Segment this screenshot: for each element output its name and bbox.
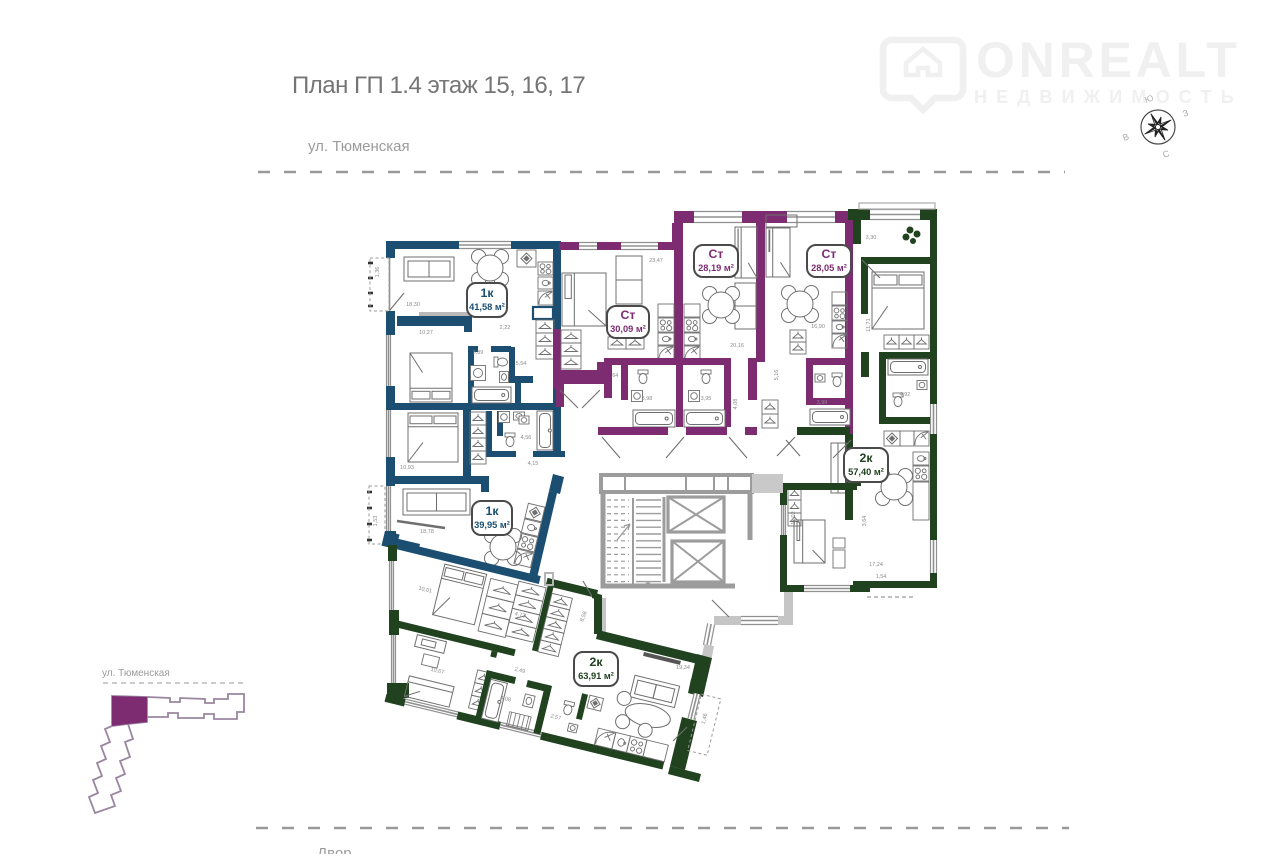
svg-text:Двор: Двор [317,845,352,854]
svg-text:План ГП 1.4 этаж 15, 16, 17: План ГП 1.4 этаж 15, 16, 17 [292,72,585,99]
svg-text:5,54: 5,54 [516,361,527,367]
svg-text:НЕДВИЖИМОСТЬ: НЕДВИЖИМОСТЬ [974,87,1243,107]
svg-text:41,58 м²: 41,58 м² [469,302,505,312]
svg-text:Ст: Ст [709,247,724,261]
svg-text:57,40 м²: 57,40 м² [848,467,884,477]
svg-text:23,47: 23,47 [649,258,663,264]
svg-text:4,56: 4,56 [521,435,532,441]
svg-text:3,30: 3,30 [866,235,877,241]
svg-text:17,24: 17,24 [869,562,883,568]
svg-text:2к: 2к [590,655,604,669]
svg-text:10,93: 10,93 [400,465,414,471]
svg-text:11,71: 11,71 [866,318,872,331]
svg-text:4,15: 4,15 [528,461,539,467]
svg-text:3,98: 3,98 [642,396,653,402]
svg-text:4,08: 4,08 [733,399,739,410]
svg-text:1,36: 1,36 [375,267,381,278]
svg-text:28,05 м²: 28,05 м² [811,263,847,273]
svg-text:63,91 м²: 63,91 м² [578,671,614,681]
svg-text:3,64: 3,64 [862,516,868,527]
svg-text:5,16: 5,16 [774,370,780,381]
svg-text:1,54: 1,54 [876,574,887,580]
svg-text:4,92: 4,92 [900,392,911,398]
svg-text:18,78: 18,78 [420,529,434,535]
svg-text:3,95: 3,95 [701,396,712,402]
svg-text:2,22: 2,22 [500,325,511,331]
svg-text:11,02: 11,02 [791,511,797,524]
svg-text:ул. Тюменская: ул. Тюменская [308,138,410,155]
svg-text:16,90: 16,90 [811,324,825,330]
svg-text:10,27: 10,27 [419,330,433,336]
svg-text:20,16: 20,16 [730,343,744,349]
svg-text:1к: 1к [486,504,500,518]
svg-text:1,53: 1,53 [373,516,379,527]
svg-text:3,99: 3,99 [817,400,828,406]
svg-text:1к: 1к [481,286,495,300]
svg-text:28,19 м²: 28,19 м² [698,263,734,273]
svg-text:ONREALT: ONREALT [976,32,1241,88]
svg-text:Ст: Ст [822,247,837,261]
svg-text:ул. Тюменская: ул. Тюменская [102,668,170,679]
svg-text:Ст: Ст [621,308,636,322]
svg-text:3,89: 3,89 [473,350,484,356]
svg-text:39,95 м²: 39,95 м² [474,520,510,530]
svg-text:2к: 2к [860,451,874,465]
svg-text:19,34: 19,34 [676,665,690,671]
svg-text:30,09 м²: 30,09 м² [610,324,646,334]
svg-text:18,30: 18,30 [406,302,420,308]
